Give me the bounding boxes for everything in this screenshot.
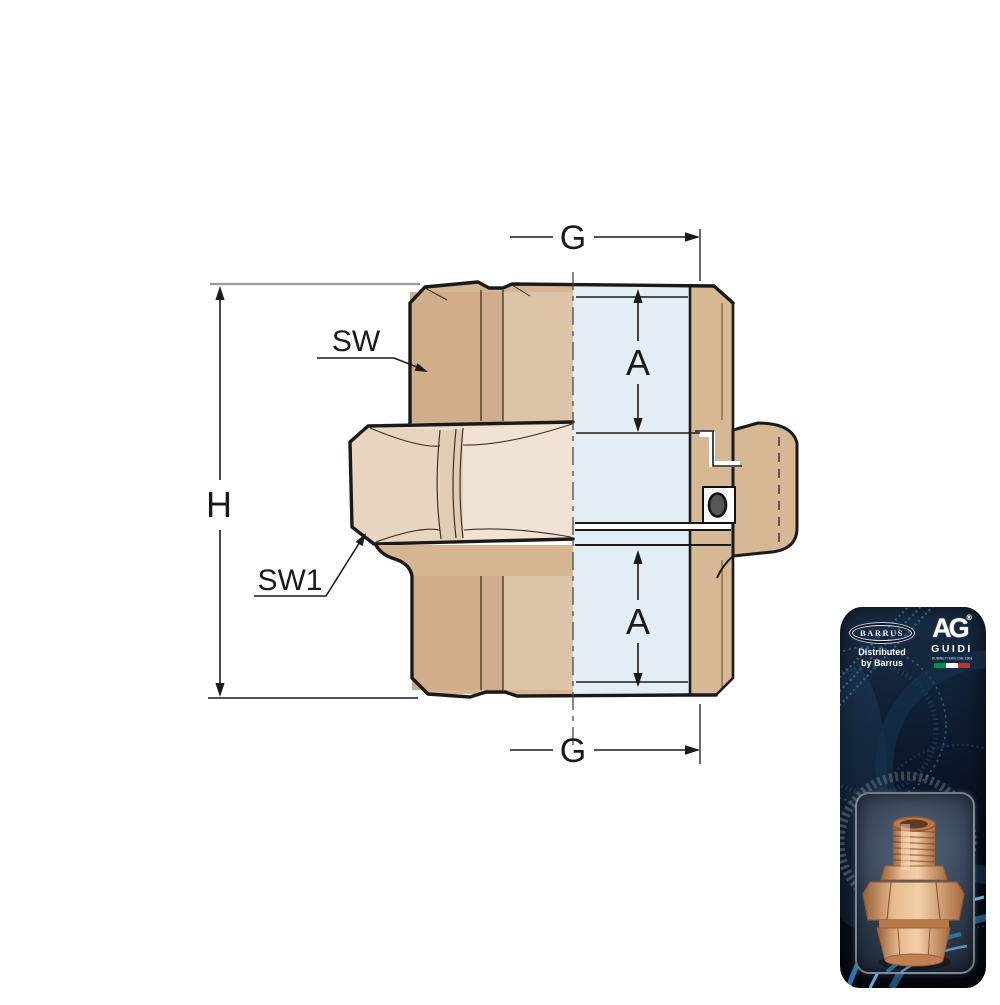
guidi-logo: AG® GUIDI RUBINETTERIE DAL 1969 [926,615,978,668]
product-package: BARRUS Distributed by Barrus AG® GUIDI R… [840,607,986,988]
barrus-block: BARRUS Distributed by Barrus [850,623,914,670]
o-ring [703,487,735,523]
blister-pack [855,792,975,974]
dim-label-g-top: G [560,219,586,257]
dim-g-bottom: G [510,704,700,770]
label-sw1: SW1 [254,533,366,597]
dim-label-a-lower: A [626,601,650,642]
dim-label-a-upper: A [626,342,650,383]
dim-label-sw: SW [332,325,381,358]
distributor-text: Distributed by Barrus [850,647,914,670]
dim-g-top: G [510,219,700,281]
dim-label-sw1: SW1 [257,564,322,597]
guidi-name: GUIDI [926,643,978,655]
guidi-tagline: RUBINETTERIE DAL 1969 [926,655,978,661]
italian-flag-icon [934,663,970,668]
dim-label-h: H [206,484,232,525]
guidi-monogram: AG® [926,615,978,642]
barrus-logo-text: BARRUS [860,628,904,638]
registered-mark: ® [967,615,972,622]
distributor-line2: by Barrus [850,658,914,669]
product-photo [857,794,973,972]
barrus-logo: BARRUS [852,625,912,641]
dim-label-g-bottom: G [560,732,586,770]
union-nut [350,422,573,544]
distributor-line1: Distributed [850,647,914,658]
guidi-monogram-text: AG [932,613,967,643]
page: G G A A H SW SW1 [0,0,1000,1000]
